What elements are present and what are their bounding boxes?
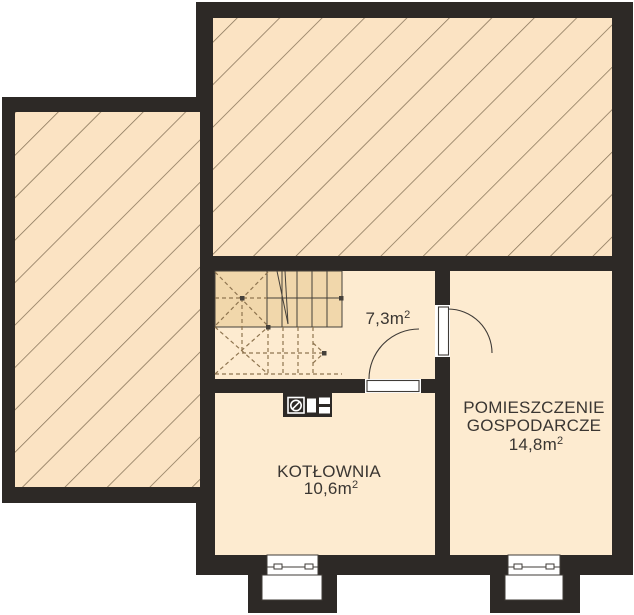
- hatched-zone-top: [213, 18, 612, 256]
- utility-room-area-label: 14,8m2: [509, 435, 564, 454]
- stair-hall-area-label: 7,3m2: [366, 309, 411, 328]
- window-utility-room: [508, 555, 560, 575]
- door-leaf: [367, 381, 419, 392]
- boiler-icon: [283, 393, 332, 417]
- boiler-room-area-label: 10,6m2: [304, 479, 359, 498]
- light-well-pit-left: [262, 575, 322, 600]
- utility-room-name-line2: GOSPODARCZE: [467, 416, 601, 435]
- floor-plan: 7,3m2 KOTŁOWNIA 10,6m2 POMIESZCZENIE GOS…: [0, 0, 634, 615]
- floor-plan-page: 7,3m2 KOTŁOWNIA 10,6m2 POMIESZCZENIE GOS…: [0, 0, 634, 615]
- utility-room-name-line1: POMIESZCZENIE: [463, 398, 604, 417]
- hatched-zone-left: [15, 112, 200, 487]
- door-leaf: [439, 307, 449, 355]
- window-boiler-room: [267, 555, 318, 575]
- light-well-pit-right: [505, 575, 563, 600]
